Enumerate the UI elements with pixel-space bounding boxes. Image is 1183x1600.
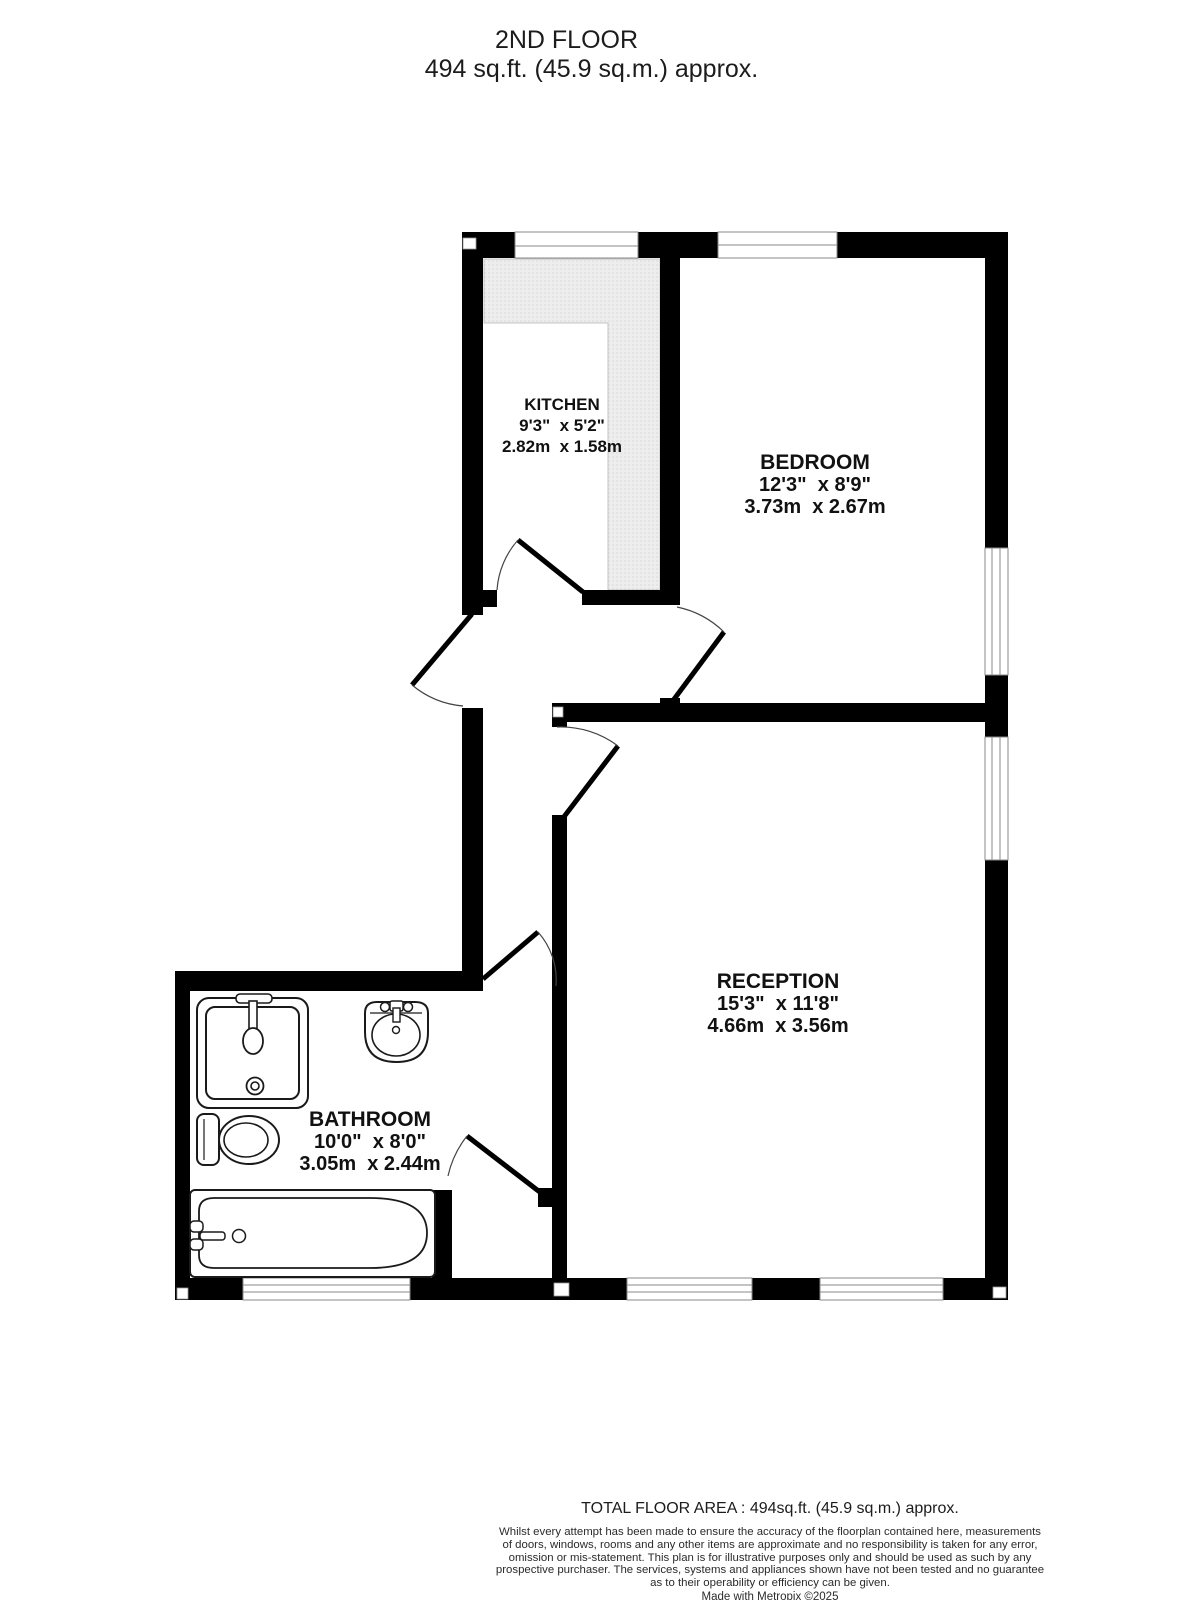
wall-hall-left: [462, 708, 483, 991]
disclaimer-line: omission or mis-statement. This plan is …: [380, 1552, 1160, 1565]
toilet: [197, 1114, 279, 1165]
floorplan-page: 2ND FLOOR 494 sq.ft. (45.9 sq.m.) approx…: [0, 0, 1183, 1600]
kitchen-label: KITCHEN: [524, 395, 600, 414]
bathroom-label: BATHROOM: [309, 1108, 431, 1131]
bedroom-window-top: [718, 232, 837, 258]
bathroom-window: [243, 1278, 410, 1300]
reception-door: [557, 727, 618, 822]
metropix-credit: Made with Metropix ©2025: [380, 1591, 1160, 1600]
wash-basin: [365, 1001, 428, 1062]
kitchen-window: [515, 232, 638, 258]
reception-window-right: [985, 737, 1008, 860]
kitchen-dims-imperial: 9'3" x 5'2": [519, 416, 605, 435]
kitchen-door: [497, 540, 583, 592]
wall-kitchen-left: [462, 232, 483, 615]
disclaimer-line: as to their operability or efficiency ca…: [380, 1577, 1160, 1590]
bathtub: [190, 1190, 435, 1277]
reception-dims-imperial: 15'3" x 11'8": [717, 993, 839, 1015]
reception-window-bottom-2: [820, 1278, 943, 1300]
bathroom-door: [483, 932, 556, 986]
bedroom-dims-metric: 3.73m x 2.67m: [744, 496, 885, 518]
disclaimer-line: prospective purchaser. The services, sys…: [380, 1564, 1160, 1577]
toilet-cistern: [197, 1114, 219, 1165]
wall-kitchen-bottom-stub: [462, 590, 497, 607]
shower-unit: [197, 994, 308, 1108]
bedroom-dims-imperial: 12'3" x 8'9": [759, 474, 871, 496]
closet-door: [448, 1136, 545, 1196]
disclaimer-line: Whilst every attempt has been made to en…: [380, 1526, 1160, 1539]
wall-kitchen-bedroom-divider: [660, 232, 680, 605]
disclaimer-line: of doors, windows, rooms and any other i…: [380, 1539, 1160, 1552]
reception-label: RECEPTION: [717, 970, 840, 993]
disclaimer: Whilst every attempt has been made to en…: [380, 1526, 1160, 1590]
wall-bathroom-top: [175, 971, 483, 991]
doors: [412, 540, 724, 1196]
total-floor-area: TOTAL FLOOR AREA : 494sq.ft. (45.9 sq.m.…: [380, 1500, 1160, 1518]
wall-reception-left: [552, 815, 567, 1280]
footer: TOTAL FLOOR AREA : 494sq.ft. (45.9 sq.m.…: [380, 1500, 1160, 1600]
reception-window-bottom-1: [627, 1278, 752, 1300]
reception-dims-metric: 4.66m x 3.56m: [707, 1015, 848, 1037]
bedroom-door: [669, 607, 724, 706]
wall-bathroom-left: [175, 971, 190, 1300]
bedroom-window-right: [985, 548, 1008, 675]
kitchen-dims-metric: 2.82m x 1.58m: [502, 437, 622, 456]
walls: [175, 232, 1008, 1300]
floorplan-drawing: KITCHEN 9'3" x 5'2" 2.82m x 1.58m BEDROO…: [0, 0, 1183, 1600]
bathroom-dims-imperial: 10'0" x 8'0": [314, 1131, 426, 1153]
bedroom-label: BEDROOM: [760, 451, 870, 474]
wall-kitchen-bottom: [582, 590, 680, 605]
basin-tap: [381, 1003, 390, 1012]
wall-bedroom-reception-divider: [552, 703, 985, 722]
entry-door: [412, 614, 472, 706]
bathtub-taps: [190, 1221, 203, 1232]
bathroom-dims-metric: 3.05m x 2.44m: [299, 1153, 440, 1175]
